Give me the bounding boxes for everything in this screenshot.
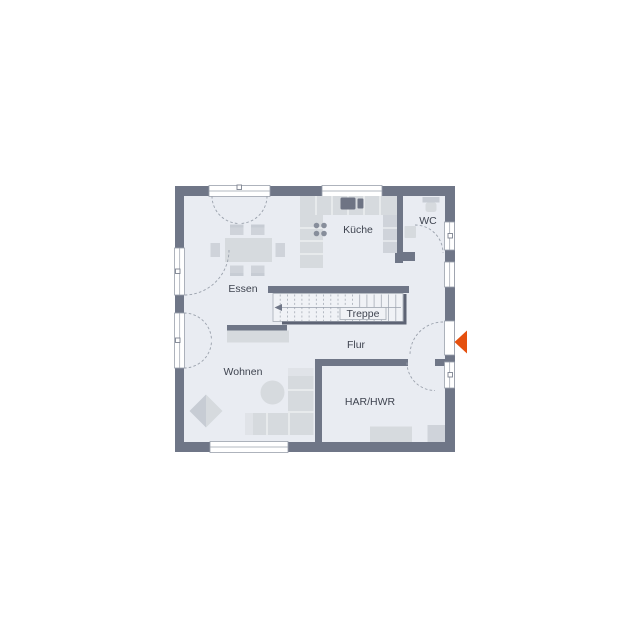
wc-sink [405, 226, 417, 238]
room-label-har-hwr: HAR/HWR [345, 396, 396, 408]
room-label-treppe: Treppe [347, 308, 380, 320]
chair [211, 243, 221, 257]
window-handle [176, 338, 181, 343]
entrance-arrow-icon [455, 331, 468, 354]
coffee-table [261, 381, 285, 405]
stairs-top-wall [268, 286, 409, 293]
kitchen-sink-drainer [358, 199, 364, 209]
window-handle [448, 373, 453, 378]
floor-plan-page: Essen Küche WC Treppe Flur Wohnen HAR/HW… [0, 0, 636, 636]
har-top-wall-stub [435, 359, 445, 366]
har-top-wall [315, 359, 408, 366]
room-label-wohnen: Wohnen [224, 366, 263, 378]
dining-table [225, 238, 272, 262]
chair [276, 243, 286, 257]
toilet-bowl [426, 203, 437, 213]
har-appliances [370, 425, 445, 442]
wc-bottom-wall [395, 252, 415, 261]
floor-plan-svg: Essen Küche WC Treppe Flur Wohnen HAR/HW… [0, 0, 636, 636]
toilet-tank [423, 197, 440, 203]
room-label-flur: Flur [347, 339, 366, 351]
door-handle [237, 185, 242, 190]
sideboard [227, 331, 289, 343]
window-handle [448, 234, 453, 239]
window-handle [176, 269, 181, 274]
room-label-kueche: Küche [343, 224, 373, 236]
har-left-wall [315, 360, 322, 442]
room-label-wc: WC [419, 215, 437, 227]
kitchen-sink [341, 198, 356, 210]
entrance-door [445, 321, 455, 355]
appliance [428, 425, 446, 442]
appliance [370, 427, 412, 443]
room-label-essen: Essen [228, 283, 257, 295]
